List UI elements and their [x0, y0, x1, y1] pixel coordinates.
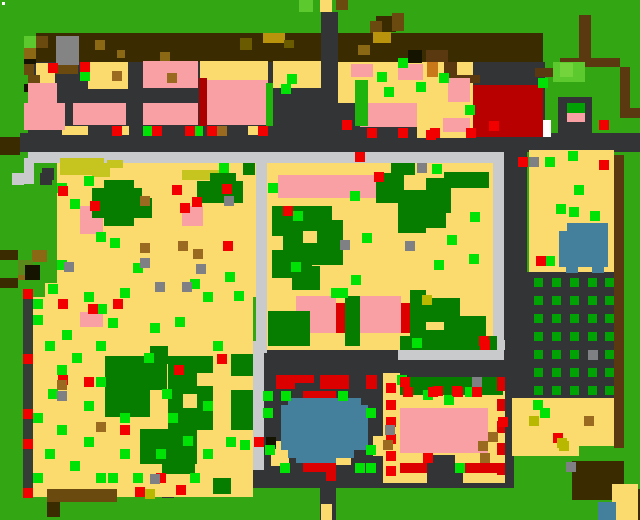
pixel-map-canvas[interactable]: [0, 0, 640, 520]
game-map: [0, 0, 640, 520]
